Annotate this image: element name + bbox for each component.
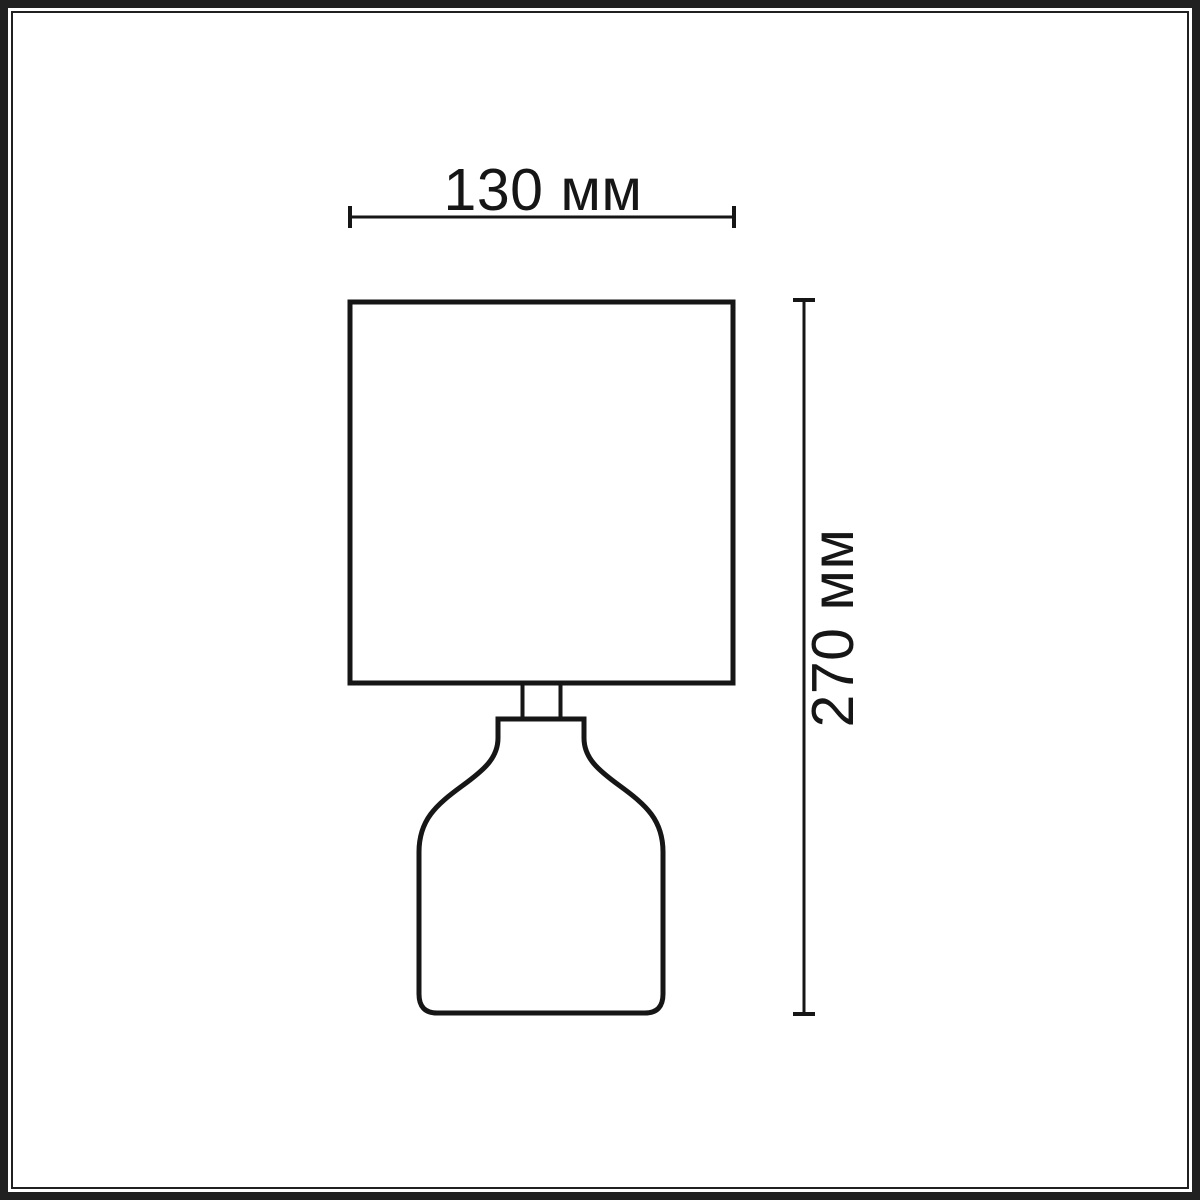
lamp-base-outline: [419, 719, 663, 1013]
height-dimension-label: 270 мм: [803, 478, 863, 778]
diagram-canvas: 130 мм 270 мм: [0, 0, 1200, 1200]
width-dimension-label: 130 мм: [393, 160, 693, 220]
lamp-neck: [523, 684, 561, 720]
lamp-shade-outline: [350, 302, 733, 683]
